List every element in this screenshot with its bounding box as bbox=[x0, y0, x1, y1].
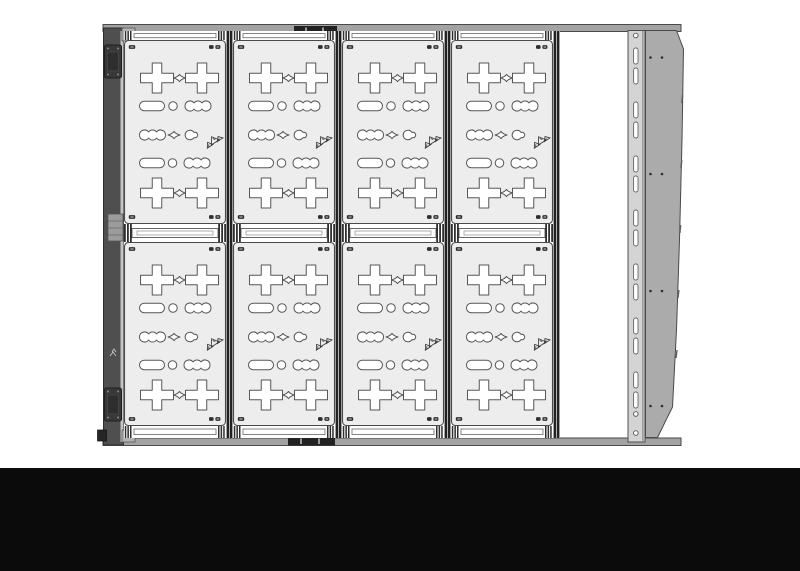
large-panel bbox=[125, 243, 226, 426]
large-panel bbox=[234, 243, 335, 426]
large-panel bbox=[343, 41, 444, 224]
roof-rack-top-view-diagram bbox=[0, 0, 800, 468]
rail-foot bbox=[98, 430, 107, 441]
side-fairing-panel bbox=[646, 31, 684, 438]
large-panel bbox=[125, 41, 226, 224]
mounting-bracket bbox=[105, 45, 122, 78]
large-panel bbox=[452, 41, 553, 224]
side-mounting-rail bbox=[628, 31, 645, 443]
screenshot-root: VEHICLE: 4G Tacoma LAYOUT: Roof Rack x8 … bbox=[0, 0, 800, 571]
large-panel bbox=[343, 243, 444, 426]
info-bar: VEHICLE: 4G Tacoma LAYOUT: Roof Rack x8 … bbox=[0, 468, 800, 571]
large-panel bbox=[234, 41, 335, 224]
large-panel bbox=[452, 243, 553, 426]
mounting-bracket bbox=[105, 388, 122, 421]
rail-joint bbox=[108, 214, 123, 241]
